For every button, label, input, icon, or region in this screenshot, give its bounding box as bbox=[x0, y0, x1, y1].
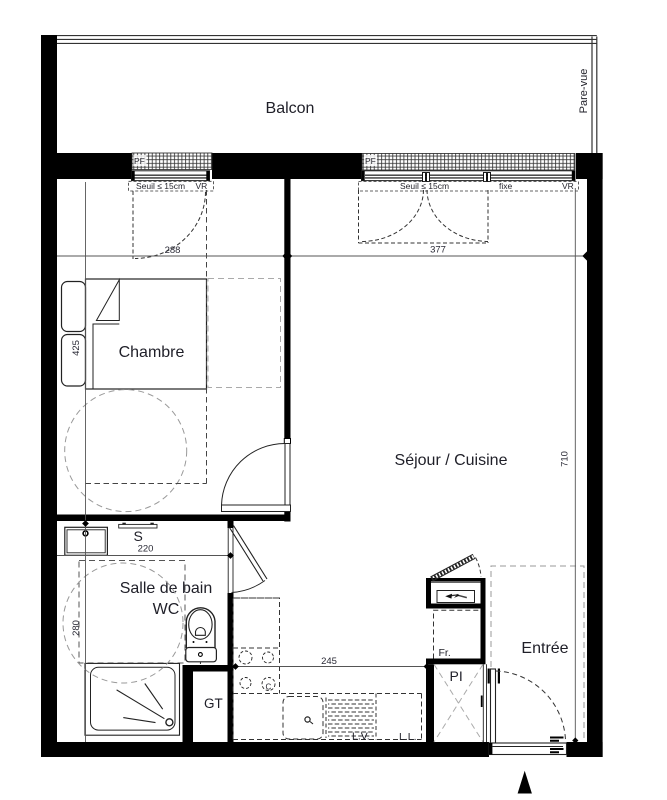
svg-text:S: S bbox=[134, 528, 143, 544]
svg-text:Fr.: Fr. bbox=[439, 647, 451, 659]
svg-text:C: C bbox=[266, 683, 272, 692]
svg-text:VR: VR bbox=[562, 181, 574, 191]
svg-text:Salle de bain: Salle de bain bbox=[120, 580, 213, 597]
svg-text:GT: GT bbox=[204, 696, 223, 711]
svg-text:425: 425 bbox=[71, 340, 82, 356]
svg-text:288: 288 bbox=[165, 245, 181, 256]
svg-text:Seuil ≤ 15cm: Seuil ≤ 15cm bbox=[400, 181, 449, 191]
svg-text:PF: PF bbox=[365, 156, 376, 166]
svg-text:PF: PF bbox=[134, 156, 145, 166]
svg-text:Pare-vue: Pare-vue bbox=[578, 69, 590, 114]
svg-text:Entrée: Entrée bbox=[521, 640, 568, 657]
svg-text:377: 377 bbox=[430, 245, 446, 256]
svg-text:PI: PI bbox=[450, 668, 463, 684]
svg-text:VR: VR bbox=[196, 181, 208, 191]
svg-text:L.V.: L.V. bbox=[352, 731, 370, 743]
svg-text:fixe: fixe bbox=[499, 181, 513, 191]
svg-text:Seuil ≤ 15cm: Seuil ≤ 15cm bbox=[136, 181, 185, 191]
svg-text:280: 280 bbox=[71, 620, 82, 636]
svg-text:Chambre: Chambre bbox=[119, 344, 185, 361]
svg-text:L.L.: L.L. bbox=[399, 731, 417, 743]
svg-text:WC: WC bbox=[153, 601, 180, 618]
svg-text:Séjour / Cuisine: Séjour / Cuisine bbox=[395, 452, 508, 469]
svg-text:245: 245 bbox=[321, 656, 337, 667]
svg-text:220: 220 bbox=[138, 544, 154, 555]
svg-text:710: 710 bbox=[560, 451, 571, 467]
svg-text:Balcon: Balcon bbox=[266, 100, 315, 117]
